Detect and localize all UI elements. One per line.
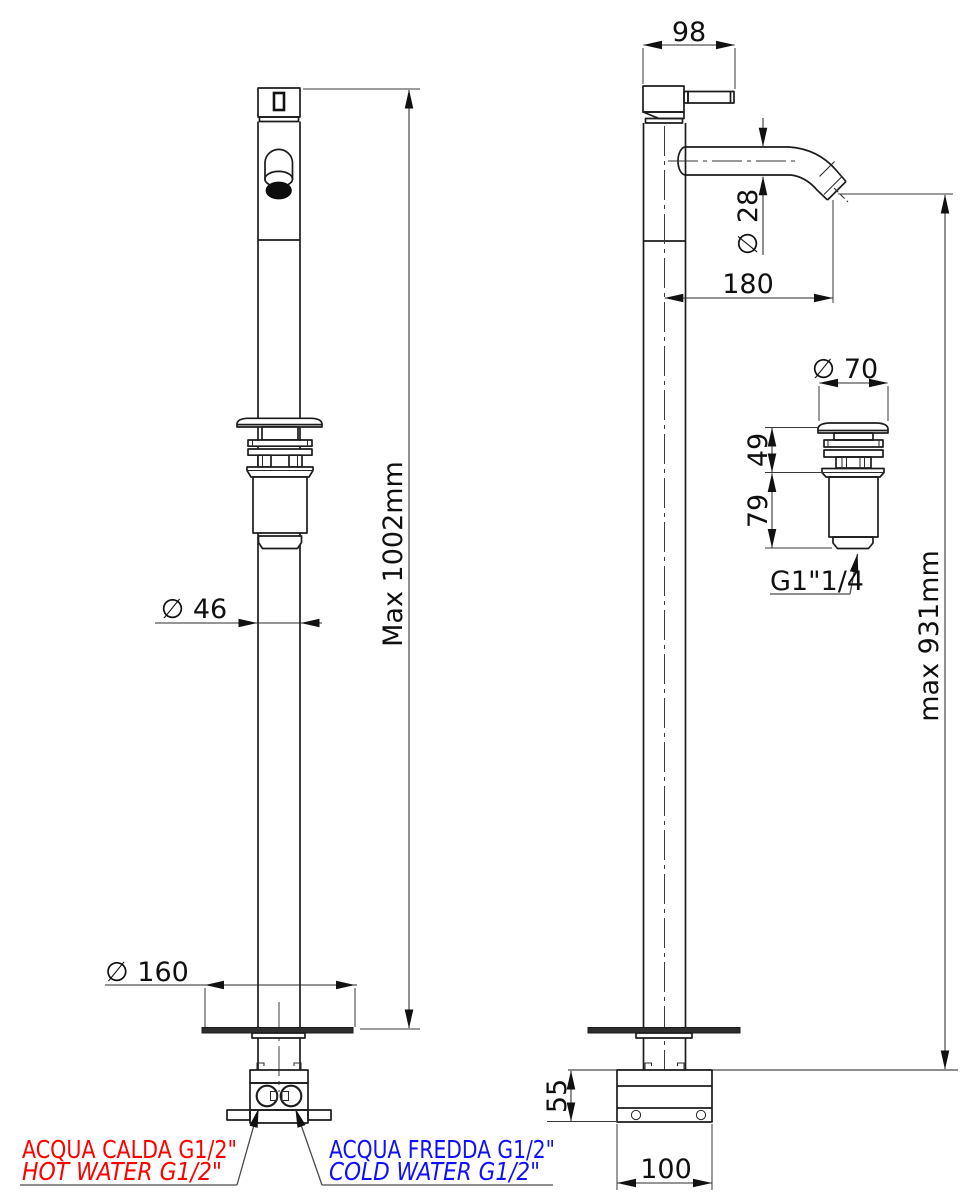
front-column xyxy=(258,122,300,1093)
dim-column-diameter: ∅ 46 xyxy=(161,594,227,625)
dim-waste-upper-height: 49 xyxy=(743,433,774,467)
dim-spout-height: max 931mm xyxy=(914,550,945,722)
side-dimensions: 98 ∅ 28 180 max 931mm 55 100 xyxy=(542,17,953,1190)
technical-drawing-page: Max 1002mm ∅ 46 ∅ 160 98 ∅ 28 180 max 93… xyxy=(0,0,971,1200)
handle-lever-side xyxy=(688,92,734,104)
connection-labels: ACQUA CALDA G1/2" HOT WATER G1/2" ACQUA … xyxy=(20,1109,555,1186)
dim-box-width: 100 xyxy=(640,1154,692,1185)
hot-inlet-port xyxy=(257,1086,278,1107)
front-handle-cap xyxy=(258,88,300,122)
side-base xyxy=(568,1028,958,1123)
dim-front-max-height: Max 1002mm xyxy=(378,461,409,647)
dim-handle-length: 98 xyxy=(672,17,706,48)
dim-base-plate-diameter: ∅ 160 xyxy=(105,957,189,988)
dim-waste-body-height: 79 xyxy=(743,494,774,528)
dim-spout-reach: 180 xyxy=(722,269,774,300)
dim-waste-cap-diameter: ∅ 70 xyxy=(812,354,878,385)
waste-detail-view xyxy=(818,423,888,549)
front-base xyxy=(202,1028,353,1124)
faucet-technical-drawing: Max 1002mm ∅ 46 ∅ 160 98 ∅ 28 180 max 93… xyxy=(0,0,971,1200)
cold-water-label-en: COLD WATER G1/2" xyxy=(329,1157,540,1186)
spout-outlet-front xyxy=(266,182,291,199)
handle-lever-front-icon xyxy=(274,93,284,110)
front-dimensions: Max 1002mm ∅ 46 ∅ 160 xyxy=(105,89,420,1029)
front-waste-overlay xyxy=(237,418,322,548)
waste-thread-label: G1"1/4 xyxy=(770,566,864,597)
dim-box-height: 55 xyxy=(542,1079,573,1113)
dim-spout-diameter: ∅ 28 xyxy=(733,189,764,255)
side-column xyxy=(644,123,686,1092)
front-spout xyxy=(265,149,293,199)
side-handle xyxy=(643,86,734,123)
hot-water-label-en: HOT WATER G1/2" xyxy=(22,1157,222,1186)
waste-dimensions: ∅ 70 49 79 G1"1/4 xyxy=(743,354,888,597)
cold-inlet-port xyxy=(281,1086,302,1107)
